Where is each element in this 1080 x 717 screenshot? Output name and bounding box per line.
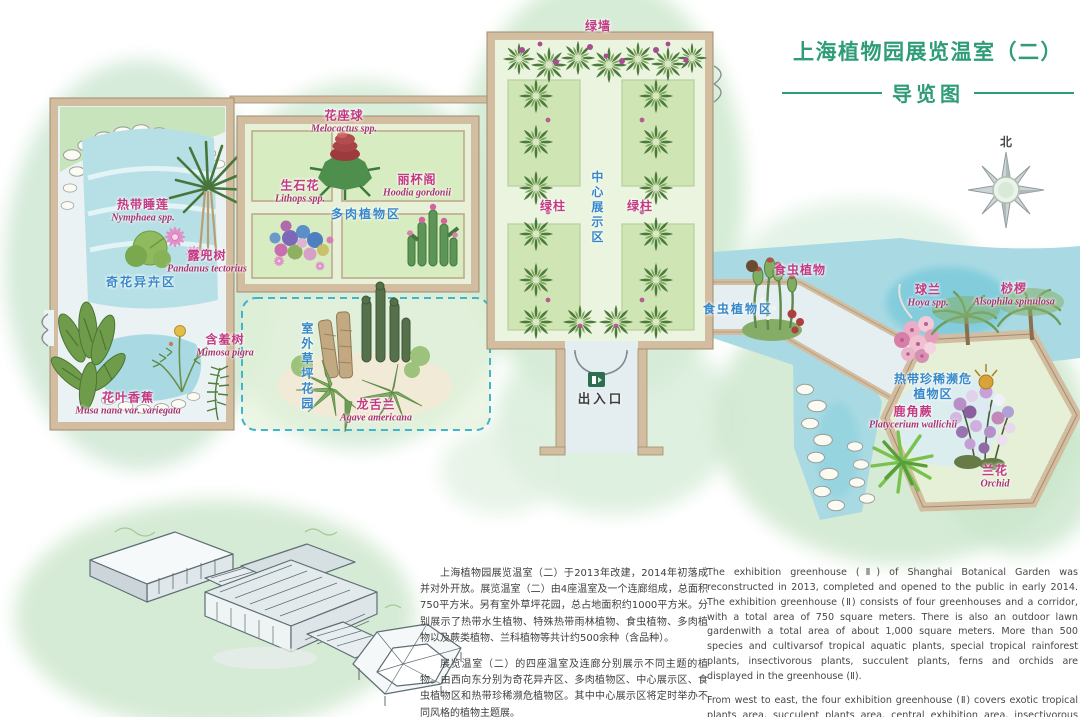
page-title: 上海植物园展览温室（二） 导览图 (782, 36, 1074, 107)
lawn-garden (242, 282, 490, 432)
compass-rose (968, 152, 1044, 228)
exit-sign-icon (588, 372, 605, 387)
title-rule-left (782, 92, 882, 94)
exotic-greenhouse (44, 98, 250, 430)
cn-paragraph-2: 展览温室（二）的四座温室及连廊分别展示不同主题的植物。由西向东分别为奇花异卉区、… (420, 657, 708, 717)
title-rule-right (974, 92, 1074, 94)
description-english: The exhibition greenhouse (Ⅱ) of Shangha… (707, 566, 1078, 717)
cn-paragraph-1: 上海植物园展览温室（二）于2013年改建，2014年初落成并对外开放。展览温室（… (420, 566, 708, 647)
title-line2: 导览图 (892, 78, 964, 107)
entrance-corridor (540, 341, 663, 455)
en-paragraph-2: From west to east, the four exhibition g… (707, 694, 1078, 717)
description-chinese: 上海植物园展览温室（二）于2013年改建，2014年初落成并对外开放。展览温室（… (420, 566, 708, 717)
central-hall (487, 32, 721, 349)
title-line1: 上海植物园展览温室（二） (782, 36, 1074, 66)
north-corridor-wall (230, 96, 488, 103)
succulent-greenhouse (237, 116, 479, 292)
en-paragraph-1: The exhibition greenhouse (Ⅱ) of Shangha… (707, 566, 1078, 685)
guide-map-page: 上海植物园展览温室（二） 导览图 北 绿墙 花座球 Melocactus spp… (0, 0, 1080, 717)
